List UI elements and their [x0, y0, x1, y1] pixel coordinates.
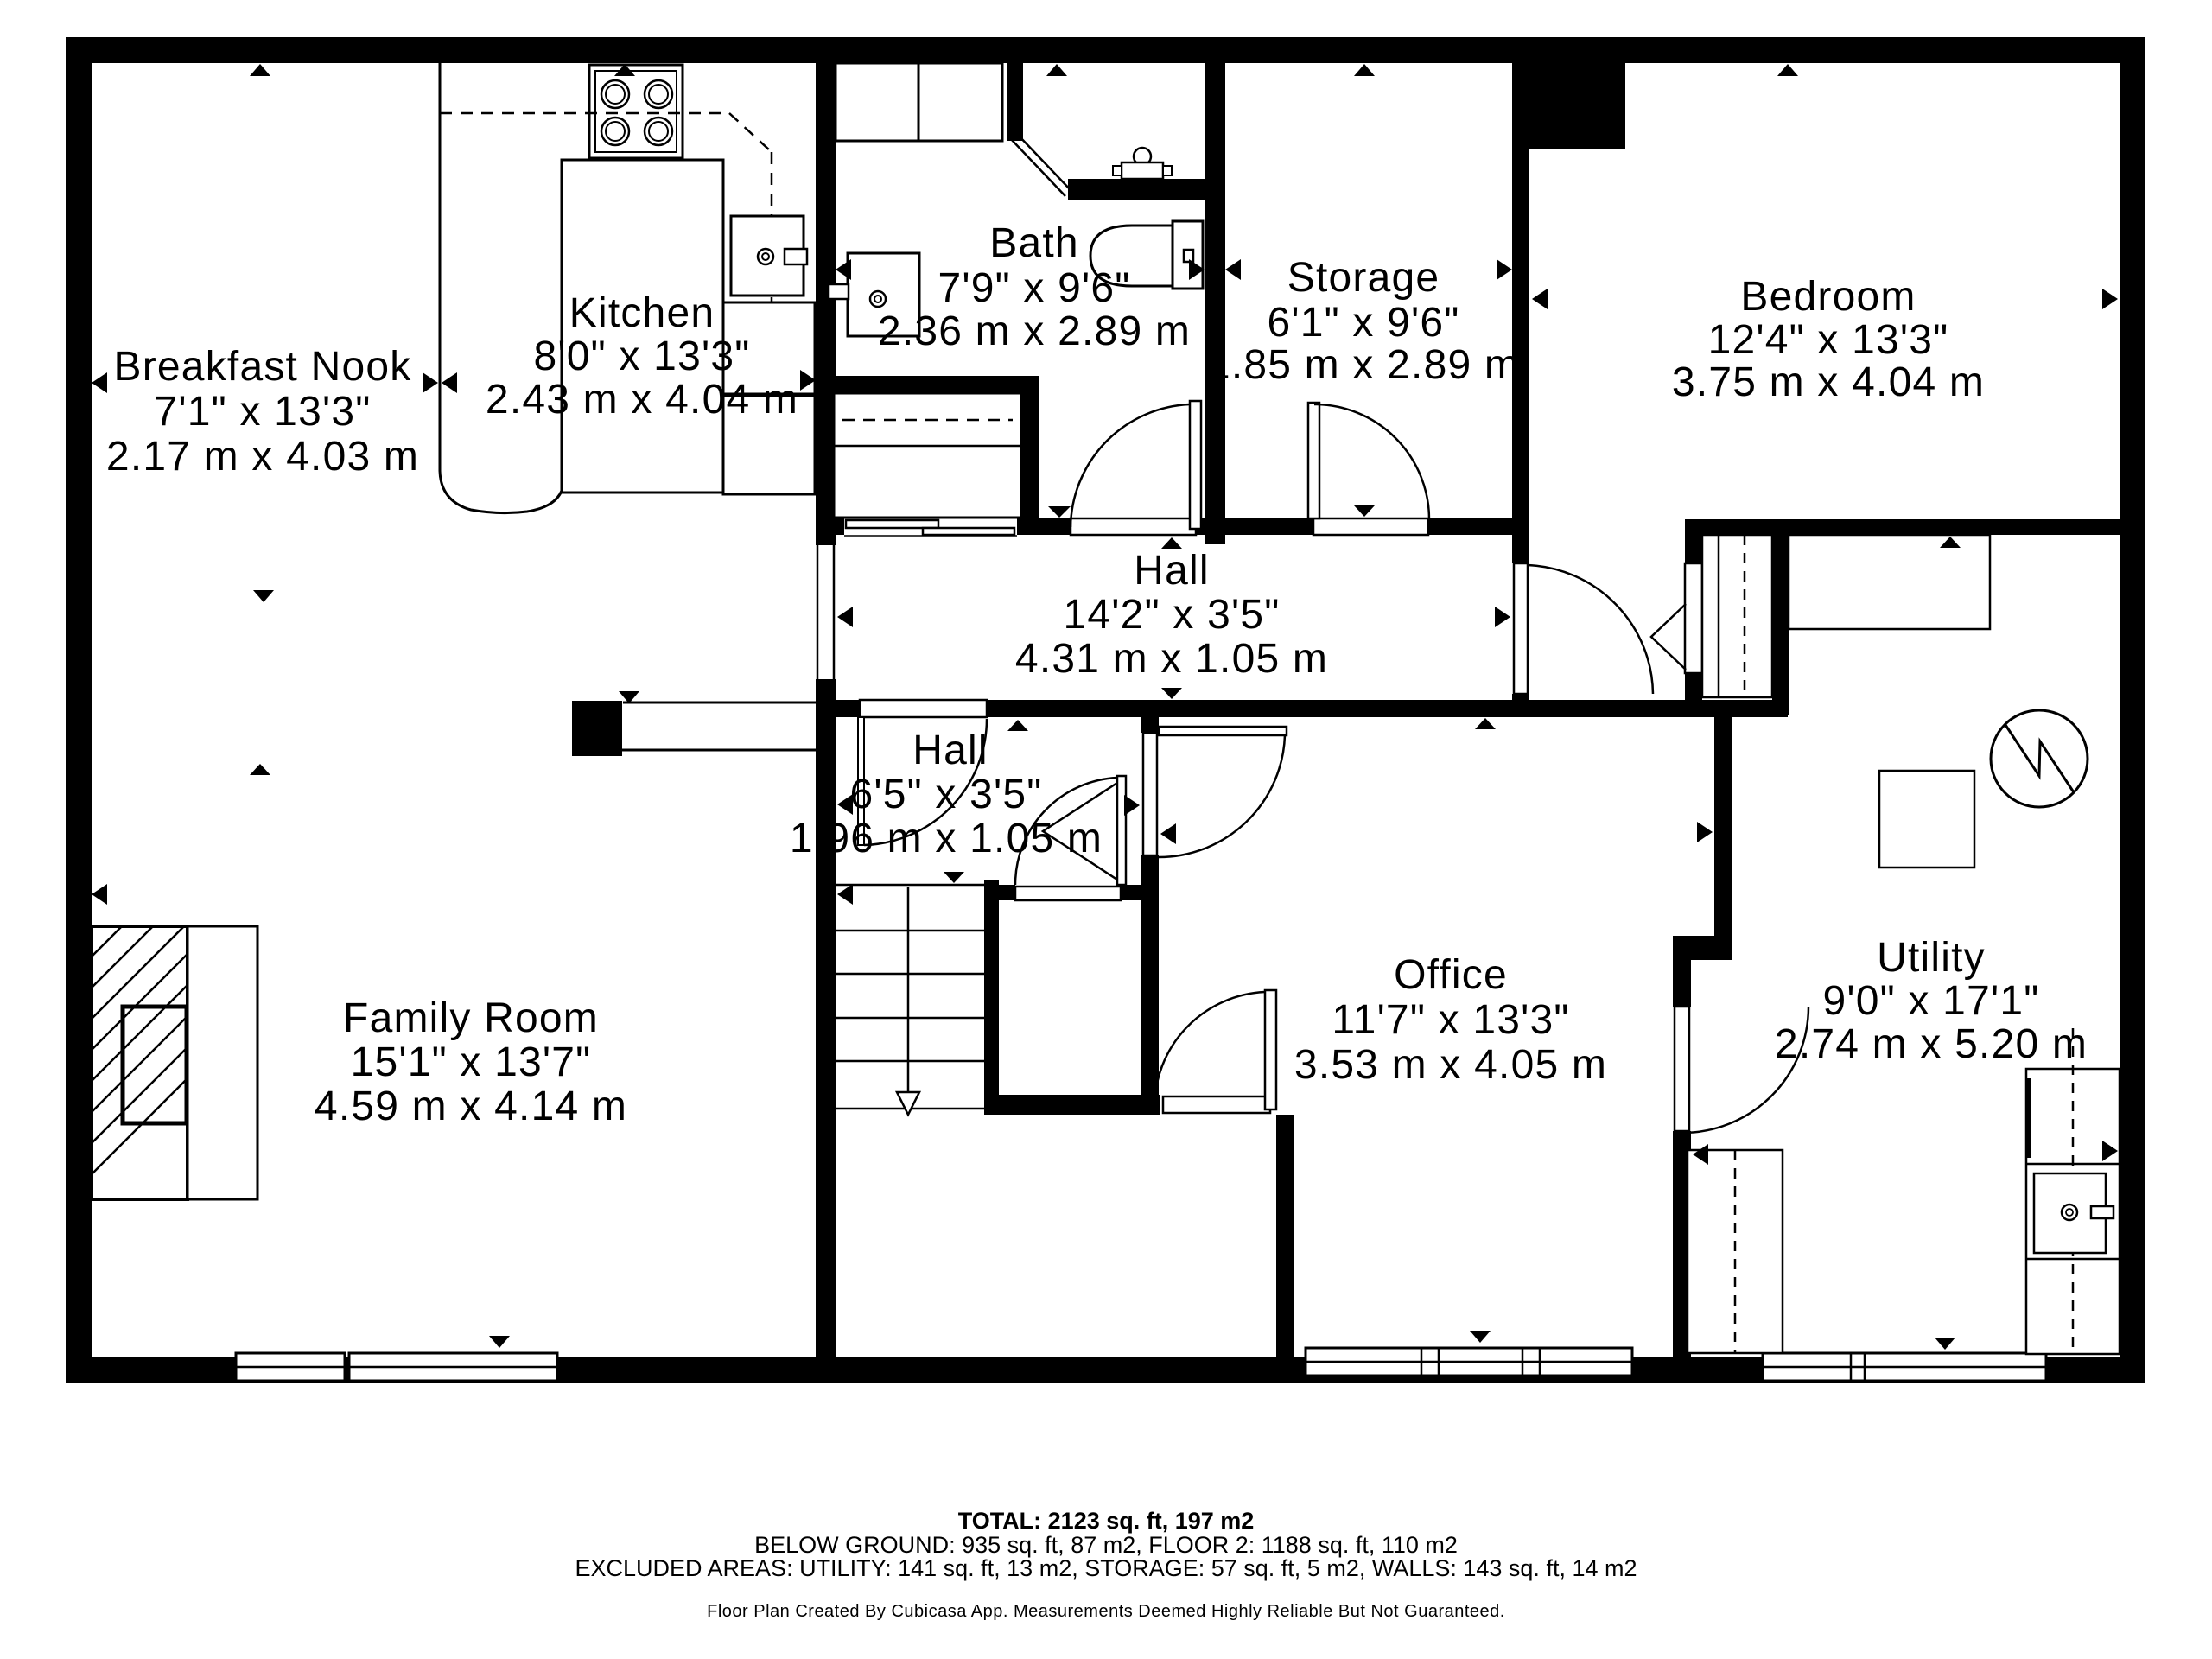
svg-text:2.17 m x 4.03 m: 2.17 m x 4.03 m [106, 434, 419, 480]
svg-text:Hall: Hall [1134, 548, 1210, 594]
svg-text:Bedroom: Bedroom [1740, 274, 1916, 320]
svg-text:12'4" x 13'3": 12'4" x 13'3" [1708, 317, 1949, 363]
svg-text:Kitchen: Kitchen [569, 290, 715, 336]
svg-text:3.75 m x 4.04 m: 3.75 m x 4.04 m [1672, 359, 1985, 405]
svg-text:6'5" x 3'5": 6'5" x 3'5" [849, 772, 1042, 817]
svg-text:1.85 m x 2.89 m: 1.85 m x 2.89 m [1207, 342, 1520, 388]
svg-text:11'7" x 13'3": 11'7" x 13'3" [1332, 997, 1569, 1043]
svg-text:Storage: Storage [1287, 255, 1440, 301]
svg-text:2.36 m x 2.89 m: 2.36 m x 2.89 m [878, 308, 1191, 354]
svg-text:1.96 m x 1.05 m: 1.96 m x 1.05 m [790, 816, 1103, 861]
svg-text:Floor Plan Created By Cubicasa: Floor Plan Created By Cubicasa App. Meas… [707, 1602, 1505, 1621]
svg-text:2.43 m x 4.04 m: 2.43 m x 4.04 m [486, 377, 798, 423]
svg-text:9'0" x 17'1": 9'0" x 17'1" [1823, 978, 2040, 1024]
svg-text:2.74 m x 5.20 m: 2.74 m x 5.20 m [1775, 1021, 2088, 1067]
svg-text:Breakfast Nook: Breakfast Nook [114, 344, 412, 390]
svg-text:4.31 m x 1.05 m: 4.31 m x 1.05 m [1015, 636, 1328, 682]
svg-text:7'1" x 13'3": 7'1" x 13'3" [155, 389, 372, 435]
svg-text:Hall: Hall [912, 728, 988, 773]
svg-text:Office: Office [1394, 952, 1508, 998]
svg-text:7'9" x 9'6": 7'9" x 9'6" [938, 265, 1130, 311]
svg-text:8'0" x 13'3": 8'0" x 13'3" [534, 334, 751, 379]
svg-text:Bath: Bath [989, 220, 1079, 266]
svg-text:Utility: Utility [1877, 935, 1986, 981]
svg-text:EXCLUDED AREAS: UTILITY: 141 s: EXCLUDED AREAS: UTILITY: 141 sq. ft, 13 … [575, 1555, 1637, 1581]
svg-text:4.59 m x 4.14 m: 4.59 m x 4.14 m [315, 1084, 627, 1129]
svg-text:3.53 m x 4.05 m: 3.53 m x 4.05 m [1294, 1042, 1607, 1088]
svg-text:Family Room: Family Room [343, 995, 599, 1041]
svg-text:6'1" x 9'6": 6'1" x 9'6" [1267, 300, 1459, 346]
svg-text:15'1" x 13'7": 15'1" x 13'7" [351, 1039, 592, 1085]
svg-text:14'2" x 3'5": 14'2" x 3'5" [1064, 592, 1281, 638]
svg-text:TOTAL: 2123 sq. ft, 197 m2: TOTAL: 2123 sq. ft, 197 m2 [958, 1508, 1255, 1534]
svg-text:BELOW GROUND: 935 sq. ft, 87 m: BELOW GROUND: 935 sq. ft, 87 m2, FLOOR 2… [754, 1532, 1458, 1558]
